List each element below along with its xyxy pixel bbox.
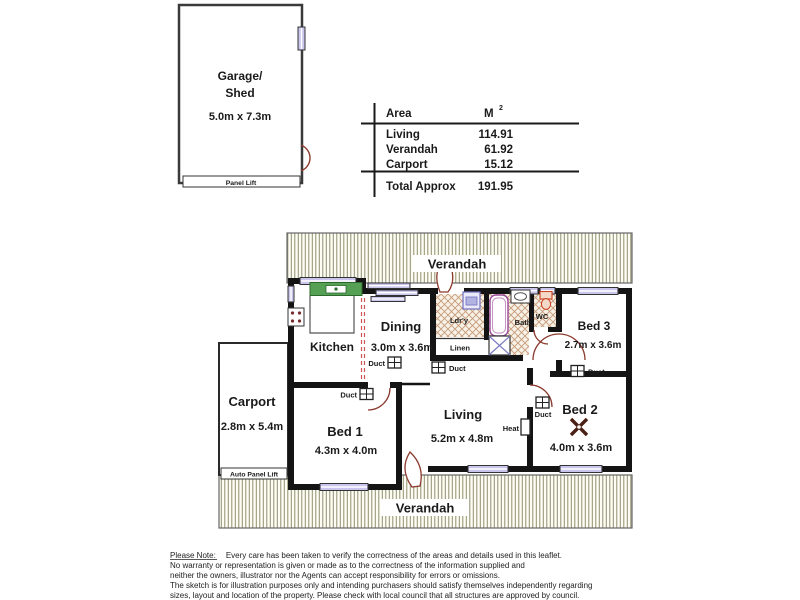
- duct-icon: [388, 357, 401, 368]
- room-label-kitchen: Kitchen: [310, 340, 354, 354]
- washing-machine-icon: [463, 292, 480, 309]
- window-icon: [578, 288, 618, 295]
- room-label-bed2: Bed 2: [562, 402, 597, 417]
- room-label-laundry: Ldr'y: [450, 316, 469, 325]
- duct-label: Duct: [368, 359, 385, 368]
- duct-icon: [432, 362, 445, 373]
- verandah-top-label: Verandah: [428, 257, 487, 272]
- window-icon: [376, 290, 418, 296]
- garage-name-line2: Shed: [225, 86, 254, 100]
- disclaimer-line1-rest: Every care has been taken to verify the …: [226, 551, 562, 560]
- room-label-wc: WC: [536, 312, 549, 321]
- basin-icon: [511, 290, 530, 303]
- garage-shed: Garage/ Shed 5.0m x 7.3m Panel Lift: [179, 5, 310, 187]
- table-row-value: 114.91: [478, 129, 513, 141]
- room-dims-living: 5.2m x 4.8m: [431, 433, 494, 445]
- table-row-value: 15.12: [484, 159, 513, 171]
- heat-label: Heat: [503, 424, 520, 433]
- bathtub-icon: [490, 295, 508, 336]
- duct-icon: [360, 389, 373, 400]
- kitchen-sink-icon: [310, 283, 362, 296]
- disclaimer-line3: neither the owners, illustrator nor the …: [170, 571, 500, 580]
- window-icon: [288, 286, 294, 302]
- room-label-linen: Linen: [450, 344, 470, 353]
- garage-name-line1: Garage/: [218, 69, 263, 83]
- verandah-bottom-label: Verandah: [396, 501, 455, 516]
- room-label-dining: Dining: [381, 319, 421, 334]
- room-dims-bed2: 4.0m x 3.6m: [550, 442, 613, 454]
- table-total-value: 191.95: [478, 181, 514, 193]
- room-label-bath: Bath: [515, 318, 532, 327]
- heater-icon: [521, 419, 530, 435]
- table-header-unit-sup: 2: [499, 105, 503, 112]
- table-row-value: 61.92: [484, 144, 513, 156]
- area-table: Area M 2 Living 114.91 Verandah 61.92 Ca…: [361, 103, 579, 197]
- disclaimer-line1: Please Note:Every care has been taken to…: [170, 551, 562, 560]
- table-total-label: Total Approx: [386, 181, 456, 193]
- floor-plan-canvas: Garage/ Shed 5.0m x 7.3m Panel Lift Area…: [0, 0, 800, 600]
- duct-icon: [571, 366, 584, 377]
- duct-label: Duct: [588, 368, 605, 377]
- window-icon: [371, 297, 405, 302]
- room-dims-bed1: 4.3m x 4.0m: [315, 445, 378, 457]
- window-icon: [298, 27, 305, 50]
- window-icon: [560, 466, 602, 473]
- garage-dims: 5.0m x 7.3m: [209, 111, 272, 123]
- stove-icon: [288, 308, 304, 326]
- room-label-bed1: Bed 1: [327, 424, 362, 439]
- table-row-label: Carport: [386, 159, 428, 171]
- house-plan: Duct Duct Duct Duct Duct: [219, 233, 632, 528]
- duct-label: Duct: [449, 364, 466, 373]
- carport-area: [219, 343, 288, 475]
- duct-icon: [536, 397, 549, 408]
- window-icon: [320, 484, 368, 491]
- window-icon: [468, 466, 508, 473]
- shower-icon: [489, 336, 510, 355]
- disclaimer-prefix: Please Note:: [170, 551, 216, 560]
- room-dims-carport: 2.8m x 5.4m: [221, 421, 284, 433]
- duct-label: Duct: [340, 391, 357, 400]
- table-row-label: Living: [386, 129, 420, 141]
- room-dims-bed3: 2.7m x 3.6m: [565, 340, 622, 351]
- room-label-bed3: Bed 3: [578, 319, 611, 333]
- table-header-area: Area: [386, 108, 412, 120]
- floor-plan-leaflet: Garage/ Shed 5.0m x 7.3m Panel Lift Area…: [0, 0, 800, 600]
- room-label-living: Living: [444, 407, 482, 422]
- duct-label: Duct: [535, 410, 552, 419]
- window-icon: [368, 283, 410, 289]
- disclaimer-line2: No warranty or representation is given o…: [170, 561, 525, 570]
- room-dims-dining: 3.0m x 3.6m: [371, 342, 434, 354]
- table-header-unit: M: [484, 108, 494, 120]
- auto-panel-lift-label: Auto Panel Lift: [230, 472, 279, 479]
- table-row-label: Verandah: [386, 144, 438, 156]
- disclaimer-line4: The sketch is for illustration purposes …: [170, 581, 592, 590]
- disclaimer: Please Note:Every care has been taken to…: [170, 551, 592, 600]
- disclaimer-line5: sizes, layout and location of the proper…: [170, 591, 579, 600]
- panel-lift-label: Panel Lift: [226, 180, 257, 187]
- room-label-carport: Carport: [229, 394, 277, 409]
